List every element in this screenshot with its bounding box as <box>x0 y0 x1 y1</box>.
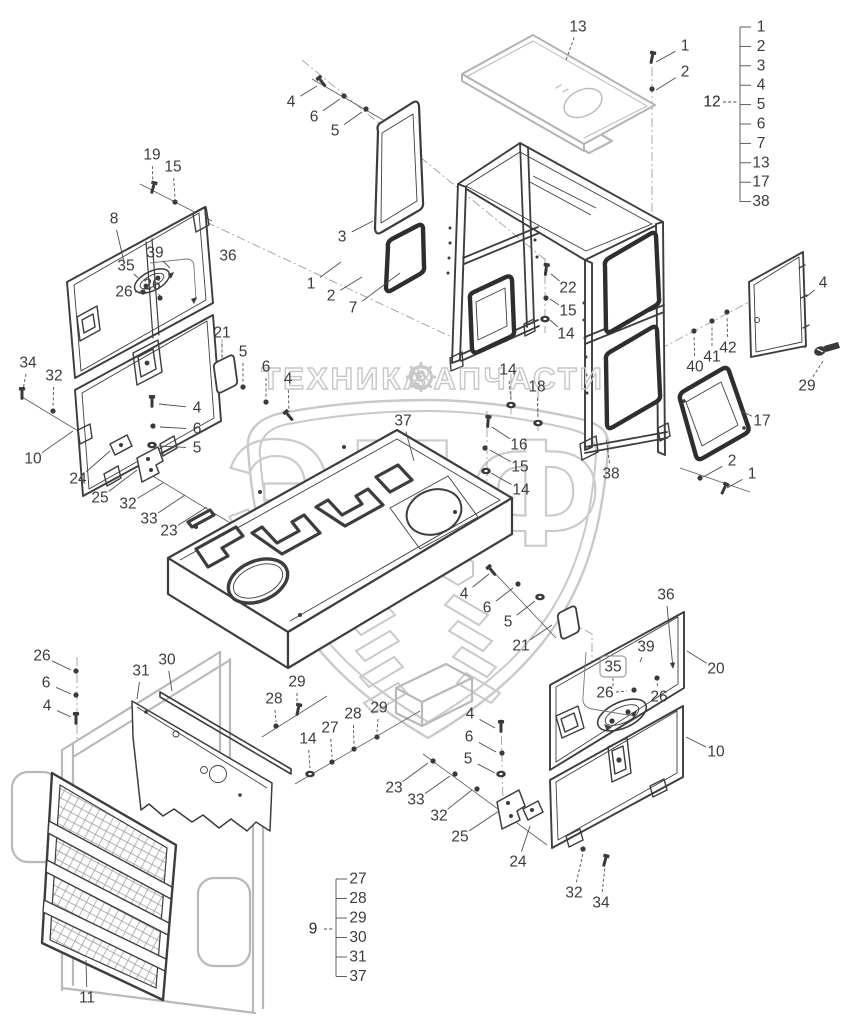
callout-label-26: 26 <box>596 685 613 702</box>
legend-item-5: 5 <box>757 96 766 113</box>
callout-leader <box>377 719 378 732</box>
callout-label-5: 5 <box>193 440 202 457</box>
legend-item-29: 29 <box>349 910 366 927</box>
legend-item-2: 2 <box>757 38 766 55</box>
callout-label-4: 4 <box>193 400 202 417</box>
callout-label-11: 11 <box>79 990 95 1007</box>
callout-leader <box>57 711 71 717</box>
legend-item-7: 7 <box>757 135 766 152</box>
callout-label-5: 5 <box>464 751 473 768</box>
callout-label-26: 26 <box>143 277 160 294</box>
callout-leader <box>174 178 175 199</box>
callout-label-3: 3 <box>338 229 347 246</box>
callout-label-7: 7 <box>349 300 358 317</box>
callout-label-36: 36 <box>657 587 674 604</box>
callout-label-42: 42 <box>719 340 736 357</box>
callout-label-6: 6 <box>193 421 202 438</box>
callout-label-4: 4 <box>466 706 475 723</box>
callout-leader <box>469 811 499 831</box>
callout-label-33: 33 <box>140 511 157 528</box>
legend-item-37: 37 <box>349 968 366 985</box>
callout-leader <box>727 316 728 337</box>
legend-label-12: 12 <box>703 94 720 111</box>
callout-leader <box>496 588 513 601</box>
callout-leader <box>323 99 340 111</box>
callout-label-28: 28 <box>265 691 282 708</box>
callout-label-34: 34 <box>19 355 37 372</box>
part-side-lid <box>375 102 423 234</box>
parts-diagram-page: ЭПФ <box>0 0 842 1028</box>
callout-leader <box>320 262 341 277</box>
callout-label-32: 32 <box>430 808 447 825</box>
callout-label-24: 24 <box>69 471 87 488</box>
callout-label-6: 6 <box>483 600 492 617</box>
callout-leader <box>576 853 583 882</box>
callout-label-27: 27 <box>321 720 338 737</box>
callout-leader <box>137 483 163 498</box>
legend-item-27: 27 <box>349 871 366 888</box>
callout-leader <box>551 274 560 281</box>
callout-label-32: 32 <box>565 885 582 902</box>
callout-label-26: 26 <box>115 284 132 301</box>
part-mounting-bracket-panel <box>132 701 272 831</box>
callout-label-37: 37 <box>394 413 411 430</box>
callout-label-34: 34 <box>592 895 610 912</box>
callout-leader <box>137 682 139 699</box>
callout-label-25: 25 <box>91 490 108 507</box>
callout-label-26: 26 <box>33 648 50 665</box>
callout-leader <box>331 739 332 757</box>
legend-item-38: 38 <box>752 193 769 210</box>
callout-label-1: 1 <box>307 276 316 293</box>
legend-item-1: 1 <box>757 19 766 36</box>
callout-label-20: 20 <box>707 661 725 678</box>
callout-label-16: 16 <box>510 437 527 454</box>
callout-label-15: 15 <box>164 159 181 176</box>
callout-label-18: 18 <box>528 379 545 396</box>
callout-label-38: 38 <box>602 466 619 483</box>
callout-leader <box>694 336 695 356</box>
callout-label-39: 39 <box>637 639 654 656</box>
callout-label-15: 15 <box>559 303 576 320</box>
callout-label-4: 4 <box>819 275 828 292</box>
exploded-parts-diagram: ЭПФ <box>0 0 842 1028</box>
part-window-seal <box>386 225 424 291</box>
callout-label-14: 14 <box>557 326 575 343</box>
callout-label-1: 1 <box>681 38 690 55</box>
legend-item-31: 31 <box>349 949 366 966</box>
legend-item-13: 13 <box>752 154 769 171</box>
callout-label-35: 35 <box>117 258 134 275</box>
callout-leader <box>53 387 54 407</box>
callout-label-32: 32 <box>119 496 136 513</box>
callout-label-6: 6 <box>42 675 51 692</box>
callout-label-6: 6 <box>262 359 271 376</box>
callout-label-10: 10 <box>24 451 42 468</box>
legend-item-30: 30 <box>349 929 367 946</box>
callout-leader <box>52 661 71 670</box>
callout-label-36: 36 <box>219 248 236 265</box>
callout-leader <box>353 725 354 744</box>
callout-leader <box>656 51 675 62</box>
callout-leader <box>448 790 472 809</box>
callout-label-5: 5 <box>331 123 340 140</box>
callout-leader <box>480 719 495 728</box>
callout-label-29: 29 <box>370 700 387 717</box>
callout-leader <box>309 750 310 768</box>
callout-label-24: 24 <box>509 854 527 871</box>
callout-label-22: 22 <box>559 280 576 297</box>
callout-leader <box>403 763 428 781</box>
callout-label-32: 32 <box>45 368 62 385</box>
callout-leader <box>158 495 185 513</box>
callout-leader <box>56 687 71 694</box>
callout-label-2: 2 <box>728 453 737 470</box>
callout-label-2: 2 <box>327 288 336 305</box>
callout-leader <box>703 466 722 477</box>
callout-label-25: 25 <box>451 829 468 846</box>
part-rear-window-panel <box>680 368 749 459</box>
callout-label-6: 6 <box>310 109 319 126</box>
callout-leader <box>687 651 707 663</box>
part-lock-key <box>813 342 840 357</box>
callout-leader <box>686 737 706 747</box>
callout-label-1: 1 <box>748 466 757 483</box>
callout-leader <box>42 431 73 453</box>
callout-leader <box>425 776 450 794</box>
legend-label-9: 9 <box>309 921 318 938</box>
callout-label-4: 4 <box>284 371 293 388</box>
callout-leader <box>352 221 373 232</box>
callout-label-8: 8 <box>110 211 119 228</box>
callout-label-29: 29 <box>798 378 815 395</box>
callout-label-4: 4 <box>43 698 52 715</box>
callout-label-2: 2 <box>681 64 690 81</box>
callout-leader <box>656 78 676 90</box>
callout-label-5: 5 <box>239 344 248 361</box>
callout-leader <box>602 866 605 892</box>
callout-label-33: 33 <box>407 792 424 809</box>
callout-label-17: 17 <box>753 413 770 430</box>
callout-label-14: 14 <box>512 482 530 499</box>
callout-label-23: 23 <box>385 780 402 797</box>
callout-label-29: 29 <box>288 674 305 691</box>
callout-label-5: 5 <box>504 614 513 631</box>
callout-leader <box>300 86 317 96</box>
callout-leader <box>479 742 496 752</box>
callout-label-30: 30 <box>158 652 176 669</box>
callout-label-23: 23 <box>160 523 177 540</box>
callout-label-21: 21 <box>512 638 529 655</box>
part-access-door <box>749 252 809 357</box>
callout-label-39: 39 <box>146 245 163 262</box>
callout-label-10: 10 <box>707 744 725 761</box>
part-roof-panel <box>462 35 655 151</box>
callout-leader <box>806 290 815 297</box>
callout-leader <box>530 625 552 640</box>
legend-item-17: 17 <box>752 174 769 191</box>
callout-label-31: 31 <box>132 663 149 680</box>
callout-label-14: 14 <box>299 731 317 748</box>
callout-label-4: 4 <box>287 94 296 111</box>
callout-leader <box>550 299 559 305</box>
callout-label-15: 15 <box>511 459 528 476</box>
callout-label-4: 4 <box>460 586 469 603</box>
callout-leader <box>478 764 495 773</box>
callout-label-19: 19 <box>143 147 160 164</box>
callout-label-14: 14 <box>499 362 517 379</box>
callout-label-13: 13 <box>569 19 586 36</box>
callout-leader <box>275 710 276 722</box>
legend-item-6: 6 <box>757 116 766 133</box>
callout-label-41: 41 <box>703 349 720 366</box>
callout-label-21: 21 <box>213 325 230 342</box>
callout-label-35: 35 <box>604 659 621 676</box>
legend-item-28: 28 <box>349 890 366 907</box>
callout-leader <box>344 112 362 125</box>
callout-label-6: 6 <box>465 729 474 746</box>
legend-item-4: 4 <box>757 77 766 94</box>
callout-label-40: 40 <box>686 359 704 376</box>
callout-label-28: 28 <box>344 706 361 723</box>
callout-leader <box>340 277 362 290</box>
legend-item-3: 3 <box>757 57 766 74</box>
callout-label-26: 26 <box>650 689 667 706</box>
callout-leader <box>813 361 823 377</box>
